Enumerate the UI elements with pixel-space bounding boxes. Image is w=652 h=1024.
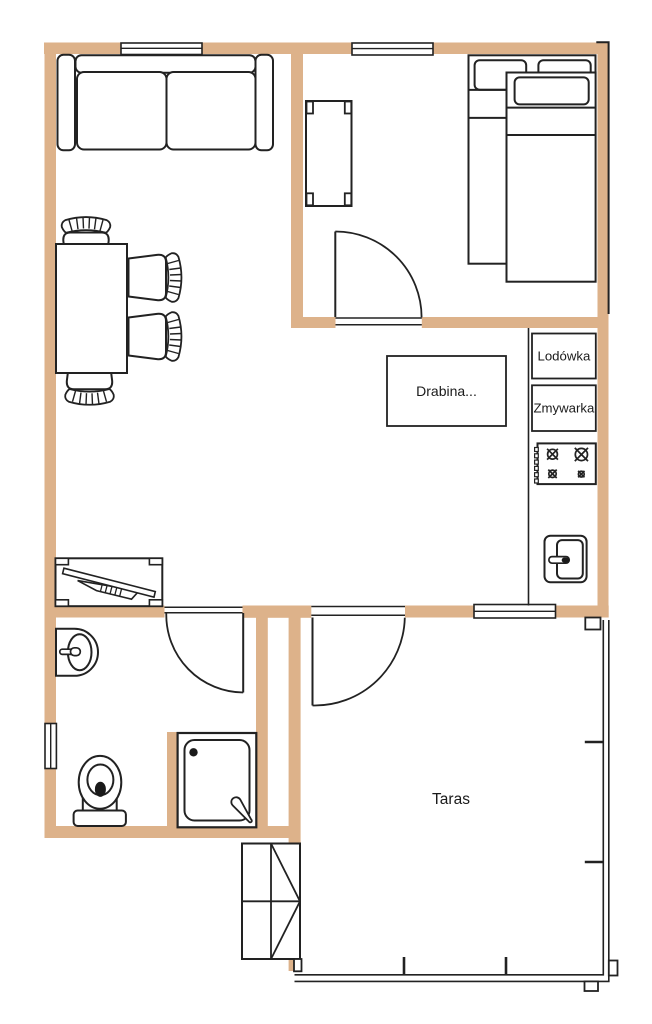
svg-text:Taras: Taras: [432, 791, 470, 808]
svg-text:Zmywarka: Zmywarka: [533, 401, 594, 416]
svg-text:Drabina...: Drabina...: [416, 383, 477, 399]
svg-text:Lodówka: Lodówka: [538, 349, 591, 364]
